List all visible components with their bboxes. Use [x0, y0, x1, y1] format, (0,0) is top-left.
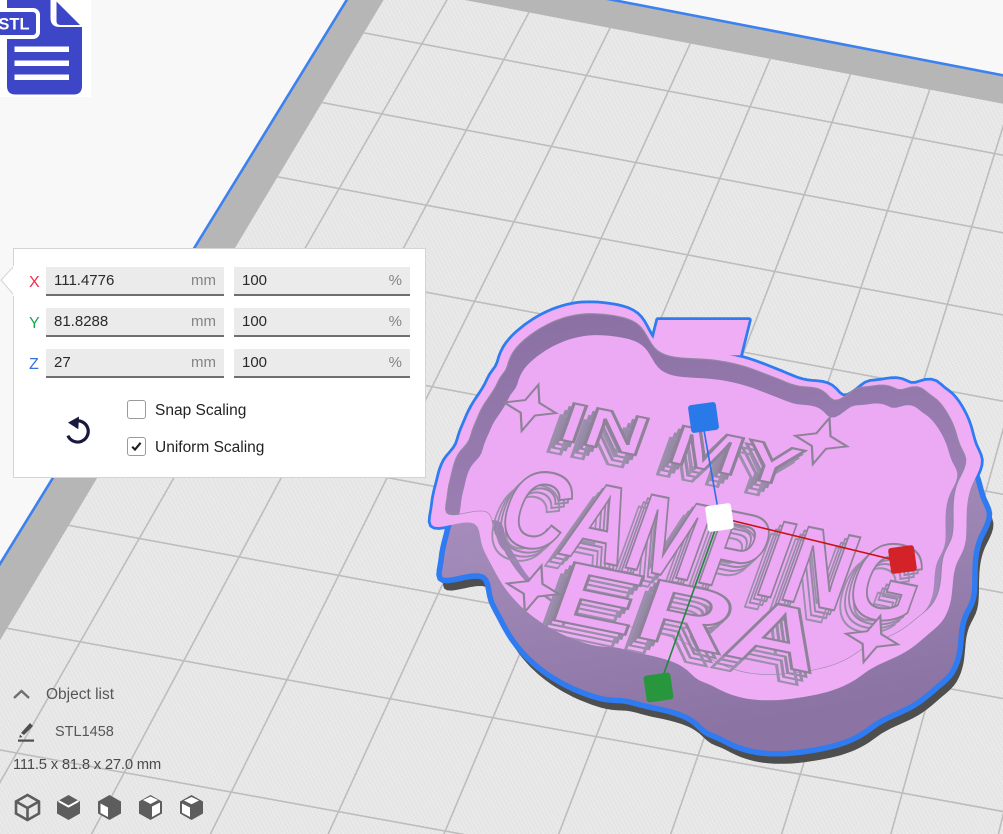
svg-text:STL: STL: [0, 16, 30, 34]
